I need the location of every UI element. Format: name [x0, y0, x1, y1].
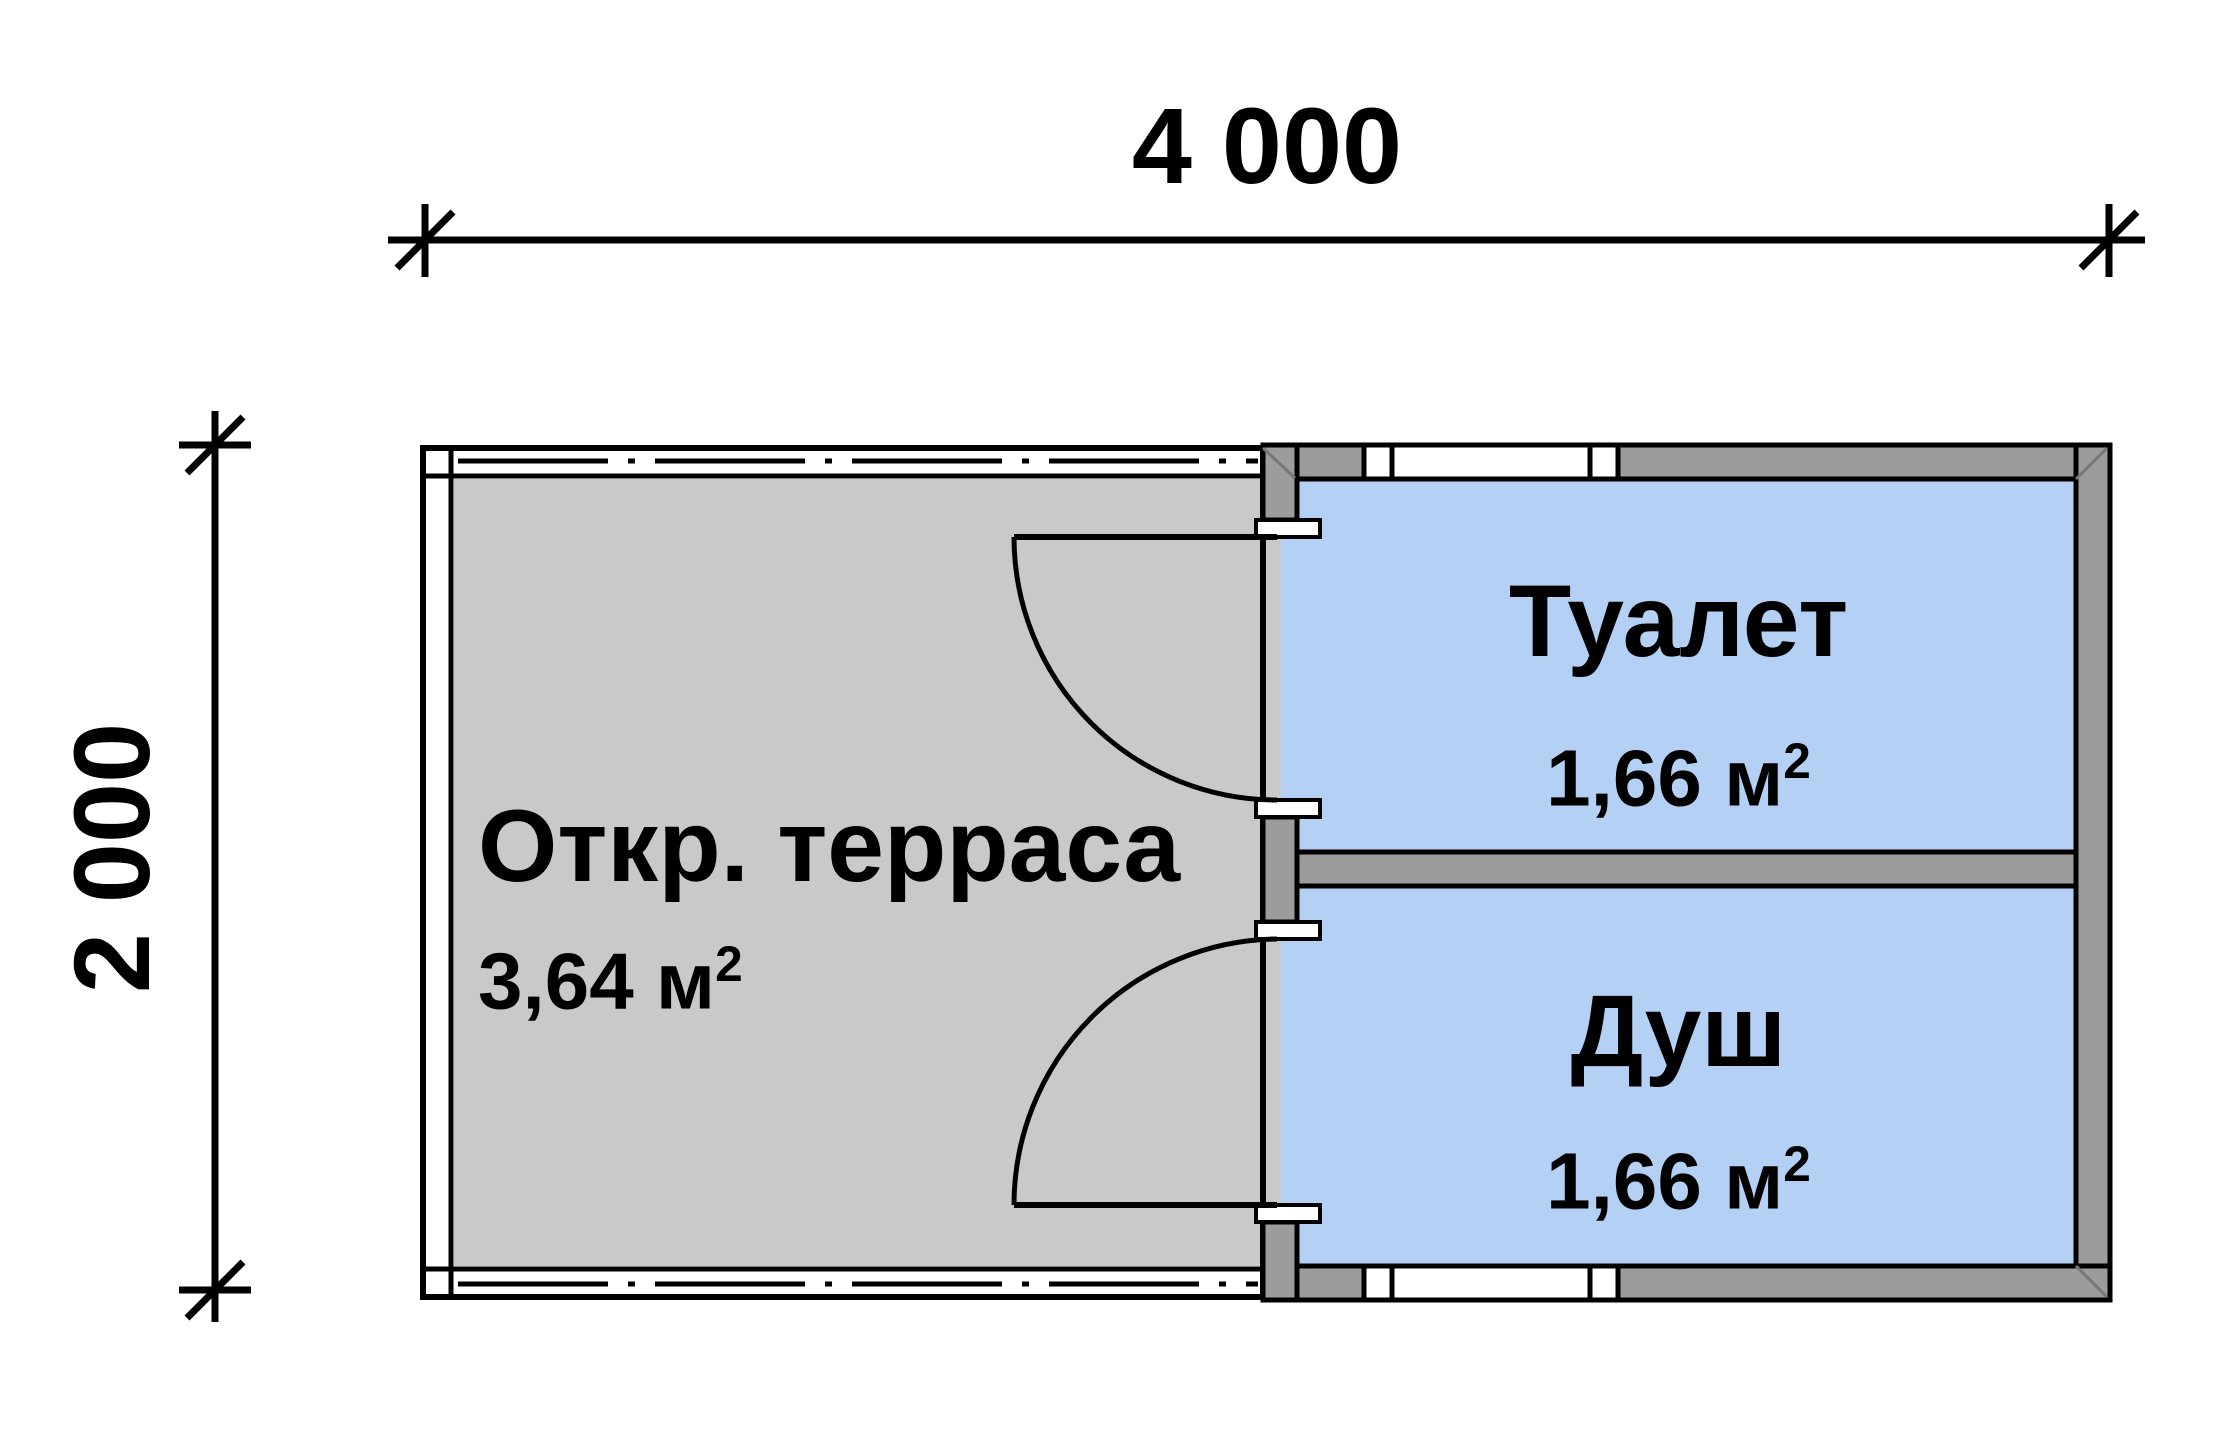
dimension-height [179, 411, 251, 1322]
terrace-area-value: 3,64 м [478, 936, 715, 1025]
dimension-width [388, 204, 2145, 277]
wall-right [2076, 445, 2110, 1300]
toilet-area-label: 1,66 м2 [1281, 737, 2076, 818]
toilet-area-superscript: 2 [1783, 733, 1811, 789]
wall-entry-segment-top [1263, 445, 1297, 520]
floor-plan-canvas: 4 000 2 000 Откр. терраса 3,64 м2 Туалет… [0, 0, 2235, 1438]
terrace-room-label: Откр. терраса [478, 795, 1180, 897]
toilet-area-value: 1,66 м [1546, 733, 1783, 822]
terrace-area-label: 3,64 м2 [478, 940, 743, 1021]
toilet-window [1364, 445, 1618, 479]
floor-plan-drawing [0, 0, 2235, 1438]
dimension-height-label: 2 000 [58, 723, 166, 993]
shower-room-label: Душ [1281, 980, 2076, 1082]
shower-area-label: 1,66 м2 [1281, 1140, 2076, 1221]
shower-window [1364, 1266, 1618, 1300]
toilet-room-label: Туалет [1281, 570, 2076, 672]
shower-area-superscript: 2 [1783, 1136, 1811, 1192]
wall-middle-partition [1297, 852, 2076, 886]
terrace-area-superscript: 2 [715, 936, 743, 992]
shower-door-jamb-top [1256, 922, 1320, 939]
wall-entry-segment-middle [1263, 817, 1297, 922]
wall-entry-segment-bottom [1263, 1222, 1297, 1300]
dimension-width-label: 4 000 [0, 92, 2235, 200]
shower-area-value: 1,66 м [1546, 1136, 1783, 1225]
